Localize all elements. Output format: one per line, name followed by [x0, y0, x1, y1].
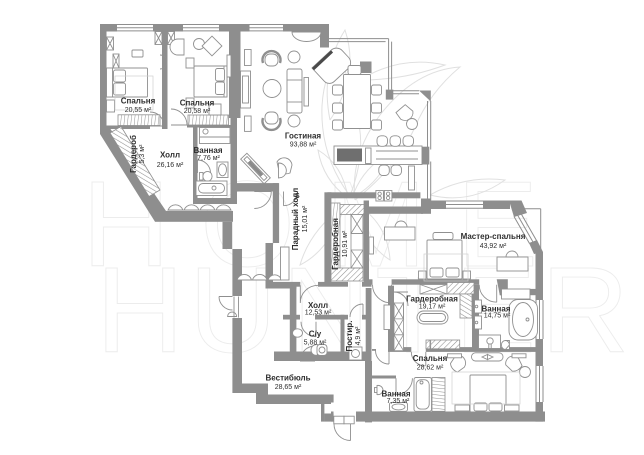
svg-text:20,55 м²: 20,55 м²	[125, 107, 152, 114]
svg-text:43,92 м²: 43,92 м²	[480, 243, 507, 250]
svg-text:26,16 м²: 26,16 м²	[157, 162, 184, 169]
svg-text:12,53 м²: 12,53 м²	[305, 310, 332, 317]
svg-text:19,17 м²: 19,17 м²	[419, 304, 446, 311]
svg-text:7,35 м²: 7,35 м²	[387, 398, 410, 405]
svg-text:Ванная: Ванная	[193, 146, 222, 155]
svg-text:Спальня: Спальня	[121, 97, 156, 106]
svg-text:Парадный холл: Парадный холл	[291, 188, 300, 251]
svg-text:93,88 м²: 93,88 м²	[290, 142, 317, 149]
svg-text:Гардеробная: Гардеробная	[406, 295, 458, 304]
svg-text:Постир.: Постир.	[345, 321, 354, 352]
svg-text:Спальня: Спальня	[413, 354, 448, 363]
svg-text:15,01 м²: 15,01 м²	[302, 205, 309, 232]
svg-text:Гардероб: Гардероб	[129, 135, 138, 173]
svg-text:10,91 м²: 10,91 м²	[342, 230, 349, 257]
svg-text:7,76 м²: 7,76 м²	[197, 155, 220, 162]
svg-text:С/у: С/у	[309, 330, 322, 339]
svg-text:5,3 м²: 5,3 м²	[139, 144, 146, 163]
svg-text:Спальня: Спальня	[180, 99, 215, 108]
svg-text:Гостиная: Гостиная	[285, 132, 321, 141]
svg-text:Холл: Холл	[160, 151, 180, 160]
svg-text:28,65 м²: 28,65 м²	[275, 384, 302, 391]
svg-text:Холл: Холл	[308, 301, 328, 310]
svg-text:Гардеробная: Гардеробная	[331, 218, 340, 270]
svg-text:Вестибюль: Вестибюль	[266, 374, 311, 383]
svg-text:Мастер-спальня: Мастер-спальня	[461, 232, 526, 241]
svg-text:20,58 м²: 20,58 м²	[184, 108, 211, 115]
svg-text:5,88 м²: 5,88 м²	[304, 340, 327, 347]
svg-text:4,9 м²: 4,9 м²	[355, 326, 362, 345]
svg-text:28,62 м²: 28,62 м²	[417, 365, 444, 372]
svg-text:14,75 м²: 14,75 м²	[484, 313, 511, 320]
